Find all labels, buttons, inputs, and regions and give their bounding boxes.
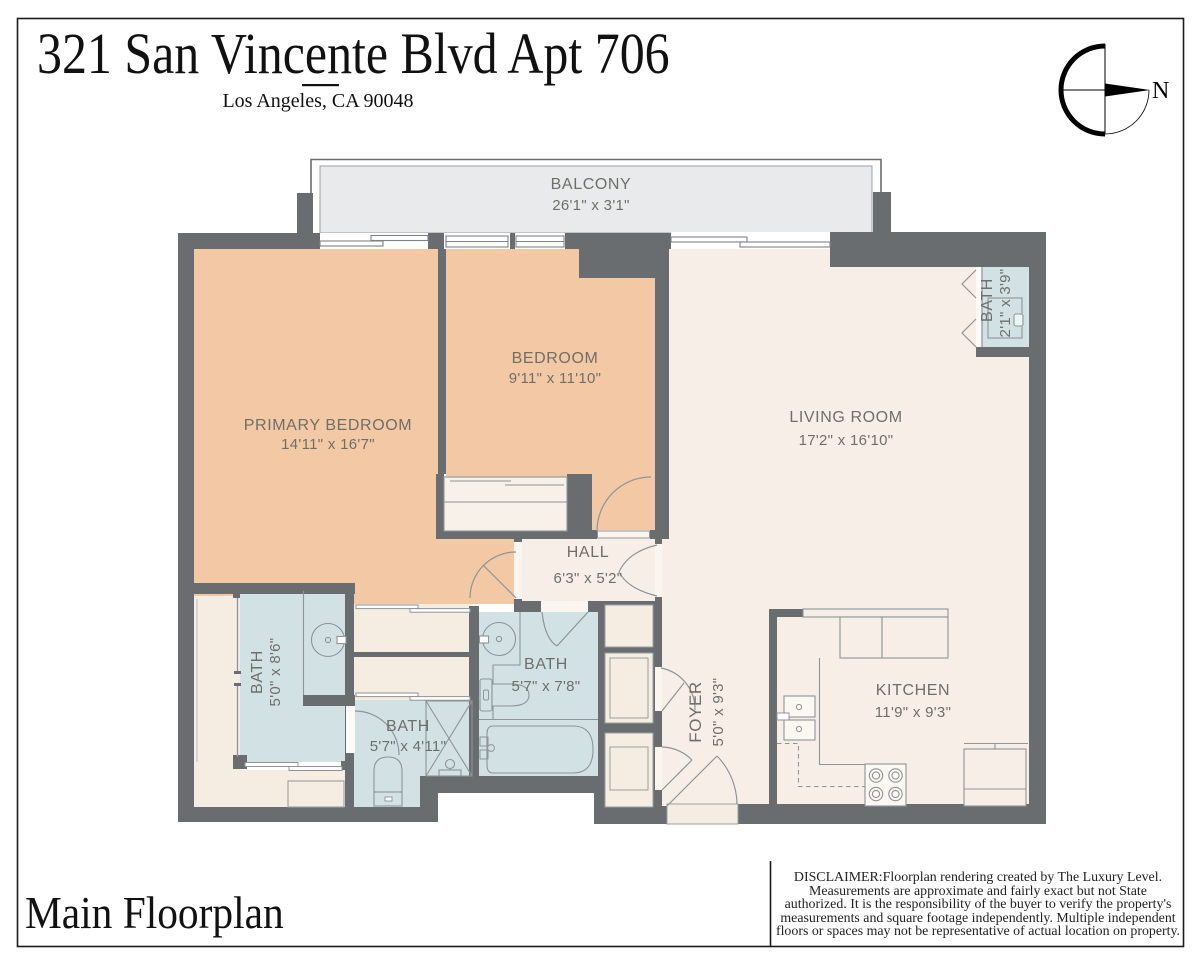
svg-text:PRIMARY BEDROOM: PRIMARY BEDROOM [244, 417, 412, 434]
svg-text:authorized. It is the responsi: authorized. It is the responsibility of … [785, 897, 1172, 912]
svg-text:5'0" x 8'6": 5'0" x 8'6" [267, 638, 284, 707]
svg-text:BATH: BATH [979, 278, 996, 322]
svg-text:321 San Vincente Blvd Apt 706: 321 San Vincente Blvd Apt 706 [37, 22, 670, 86]
svg-text:HALL: HALL [567, 544, 609, 561]
svg-text:FOYER: FOYER [686, 681, 705, 743]
svg-text:6'3" x 5'2": 6'3" x 5'2" [554, 570, 623, 587]
svg-text:N: N [1152, 78, 1169, 104]
svg-text:5'7" x 4'11": 5'7" x 4'11" [370, 738, 446, 755]
svg-text:9'11" x 11'10": 9'11" x 11'10" [509, 370, 602, 387]
svg-text:BEDROOM: BEDROOM [512, 350, 599, 367]
svg-text:BATH: BATH [386, 718, 430, 735]
svg-text:BATH: BATH [524, 656, 568, 673]
svg-text:14'11" x 16'7": 14'11" x 16'7" [281, 436, 375, 453]
svg-text:5'7" x 7'8": 5'7" x 7'8" [512, 678, 581, 695]
svg-text:DISCLAIMER:Floorplan rendering: DISCLAIMER:Floorplan rendering created b… [794, 870, 1162, 885]
svg-text:17'2" x 16'10": 17'2" x 16'10" [799, 432, 894, 449]
svg-text:floors or spaces may not be re: floors or spaces may not be representati… [776, 924, 1180, 939]
svg-text:5'0" x 9'3": 5'0" x 9'3" [710, 678, 727, 747]
svg-text:11'9" x 9'3": 11'9" x 9'3" [875, 704, 951, 721]
svg-text:2'1" x 3'9": 2'1" x 3'9" [997, 269, 1014, 338]
svg-text:LIVING ROOM: LIVING ROOM [789, 409, 902, 426]
svg-text:Main Floorplan: Main Floorplan [25, 888, 284, 938]
svg-text:BATH: BATH [249, 650, 266, 694]
svg-text:Los Angeles, CA 90048: Los Angeles, CA 90048 [222, 90, 413, 112]
svg-text:KITCHEN: KITCHEN [876, 682, 950, 699]
svg-text:26'1" x 3'1": 26'1" x 3'1" [552, 197, 630, 214]
svg-text:BALCONY: BALCONY [551, 176, 632, 193]
